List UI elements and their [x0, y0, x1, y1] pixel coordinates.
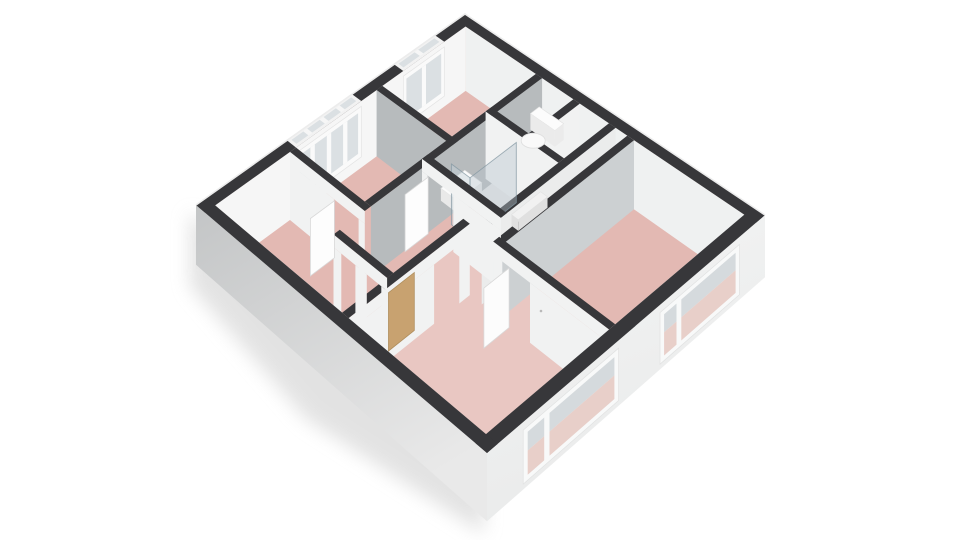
window-living-room-mullion: [544, 410, 549, 463]
floorplan-3d-svg: [0, 0, 960, 540]
window-bedroom-left-mullion-0: [343, 121, 347, 165]
floorplan-3d-view: [0, 0, 960, 540]
window-bedroom-left-mullion-1: [327, 133, 331, 177]
wall-entry-closet-face: [381, 286, 387, 351]
door-handle-dot: [540, 310, 543, 313]
wall-entry-closet-face: [355, 265, 366, 334]
window-bedroom-right-mullion: [677, 297, 682, 347]
toilet-bowl: [521, 133, 545, 148]
window-small-room-mullion-0: [422, 65, 426, 108]
wall-entry-east-face: [459, 237, 470, 304]
